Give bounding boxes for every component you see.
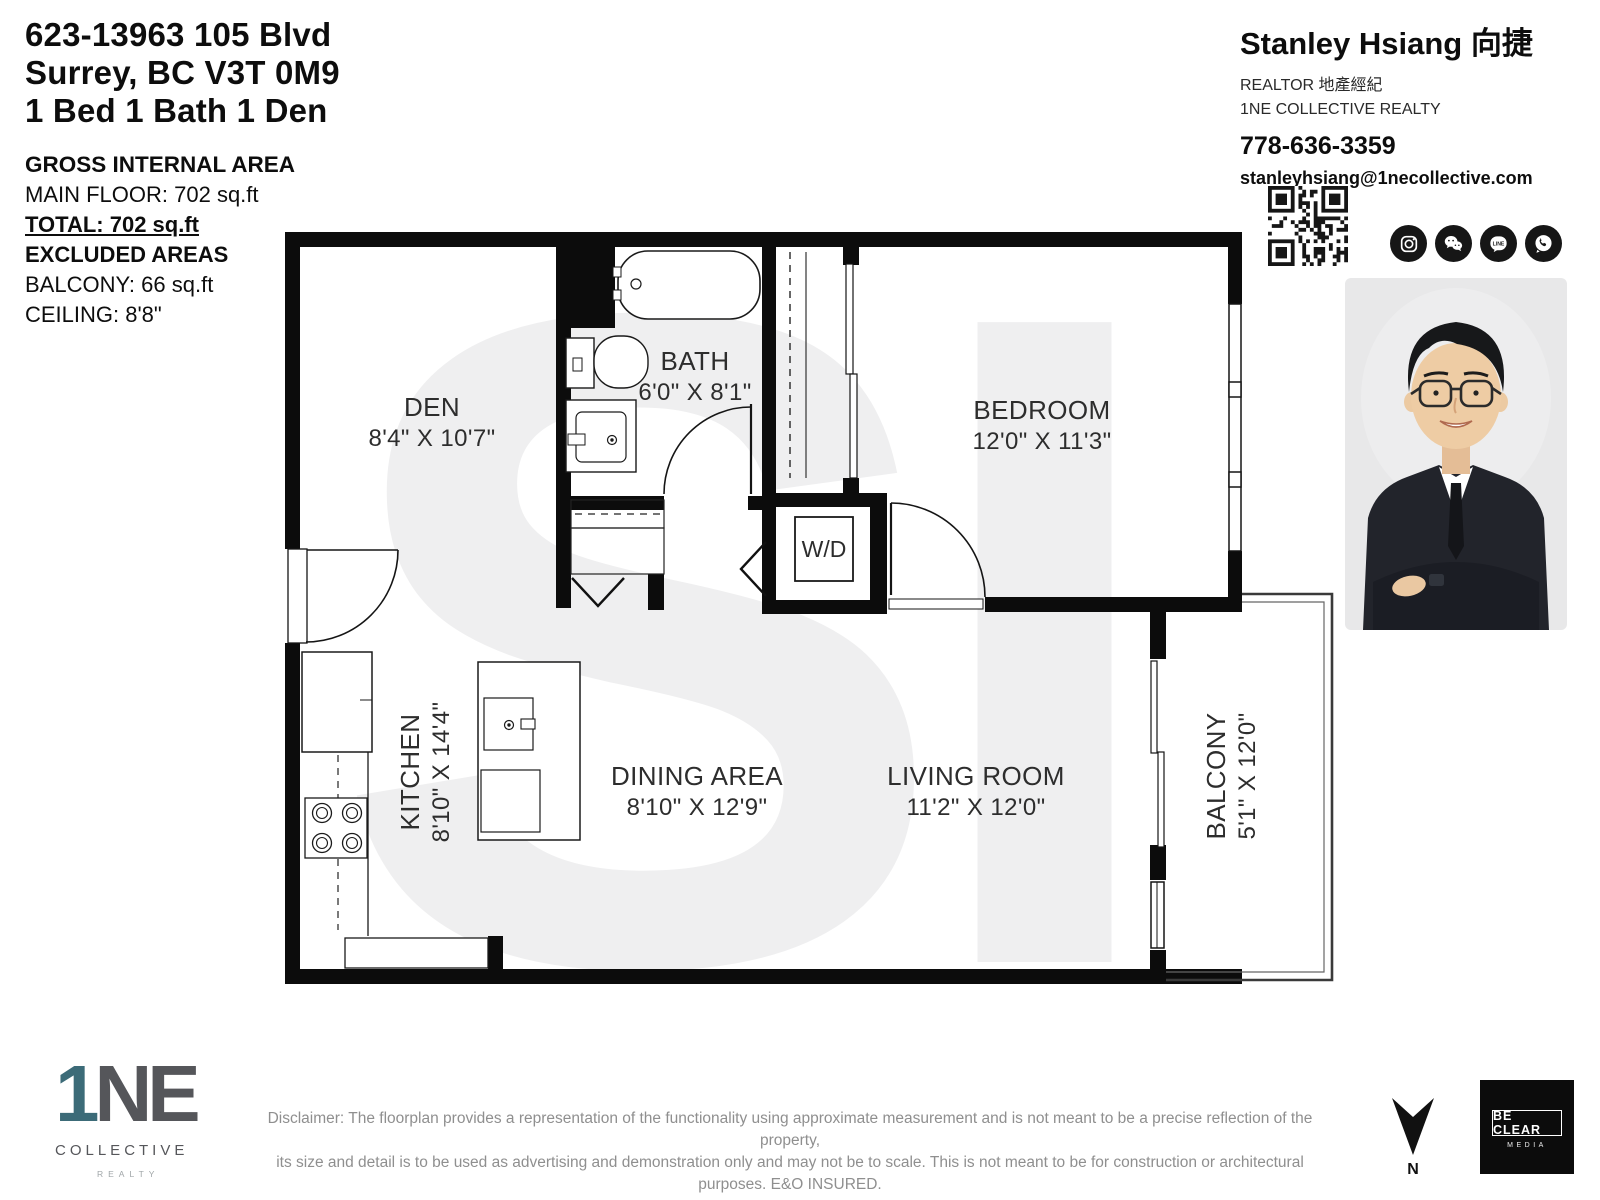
room-name: BATH: [595, 346, 795, 377]
total-area: TOTAL: 702 sq.ft: [25, 210, 295, 240]
media-badge: BE CLEAR MEDIA: [1480, 1080, 1574, 1174]
instagram-icon: [1390, 225, 1427, 262]
address-line2: Surrey, BC V3T 0M9: [25, 54, 340, 92]
agent-name: Stanley Hsiang 向捷: [1240, 18, 1580, 63]
room-name: LIVING ROOM: [856, 761, 1096, 792]
gross-internal-area-label: GROSS INTERNAL AREA: [25, 150, 295, 180]
bedroom-window: [1229, 304, 1241, 551]
wechat-icon: [1435, 225, 1472, 262]
room-name: DINING AREA: [577, 761, 817, 792]
room-name: KITCHEN: [395, 652, 426, 892]
balcony-area: BALCONY: 66 sq.ft: [25, 270, 295, 300]
agent-phone: 778-636-3359: [1240, 132, 1580, 161]
media-badge-title: BE CLEAR: [1492, 1110, 1562, 1136]
balcony-window: [1151, 882, 1164, 948]
room-name: BEDROOM: [922, 395, 1162, 426]
qr-code: [1268, 186, 1348, 266]
north-label: N: [1407, 1161, 1419, 1178]
logo-wordmark: 1NE: [55, 1054, 205, 1134]
kitchen-cabinet: [302, 652, 372, 752]
room-dims: 8'4" X 10'7": [332, 423, 532, 454]
agent-title: REALTOR 地產經紀: [1240, 71, 1580, 95]
agent-photo: [1345, 278, 1567, 630]
bathtub: [613, 251, 760, 319]
room-dims: 8'10" X 14'4": [426, 652, 457, 892]
room-dims: 5'1" X 12'0": [1232, 656, 1263, 896]
logo-collective: COLLECTIVE: [55, 1142, 205, 1159]
agent-info: Stanley Hsiang 向捷 REALTOR 地產經紀 1NE COLLE…: [1240, 18, 1580, 189]
area-summary: GROSS INTERNAL AREA MAIN FLOOR: 702 sq.f…: [25, 150, 295, 330]
room-name: DEN: [332, 392, 532, 423]
address-line3: 1 Bed 1 Bath 1 Den: [25, 92, 340, 130]
north-arrow: N: [1392, 1098, 1434, 1178]
logo-one: 1: [55, 1049, 95, 1138]
room-label-kitchen: KITCHEN 8'10" X 14'4": [395, 652, 459, 892]
room-dims: 12'0" X 11'3": [922, 426, 1162, 457]
room-dims: 11'2" X 12'0": [856, 792, 1096, 823]
agent-brokerage: 1NE COLLECTIVE REALTY: [1240, 101, 1580, 119]
room-dims: 6'0" X 8'1": [595, 377, 795, 408]
ceiling-height: CEILING: 8'8": [25, 300, 295, 330]
stove: [305, 798, 367, 858]
room-label-den: DEN 8'4" X 10'7": [332, 392, 532, 454]
address-line1: 623-13963 105 Blvd: [25, 16, 340, 54]
disclaimer-line2: its size and detail is to be used as adv…: [250, 1152, 1330, 1196]
excluded-areas-label: EXCLUDED AREAS: [25, 240, 295, 270]
line-icon: LINE: [1480, 225, 1517, 262]
line-icon-text: LINE: [1493, 241, 1505, 247]
kitchen-island: [478, 662, 580, 840]
room-label-balcony: BALCONY 5'1" X 12'0": [1201, 656, 1265, 896]
room-label-dining: DINING AREA 8'10" X 12'9": [577, 761, 817, 823]
disclaimer: Disclaimer: The floorplan provides a rep…: [250, 1108, 1330, 1196]
disclaimer-line1: Disclaimer: The floorplan provides a rep…: [250, 1108, 1330, 1152]
brokerage-logo: 1NE COLLECTIVE REALTY: [55, 1054, 205, 1179]
main-floor-area: MAIN FLOOR: 702 sq.ft: [25, 180, 295, 210]
logo-realty: REALTY: [97, 1169, 205, 1179]
room-label-bath: BATH 6'0" X 8'1": [595, 346, 795, 408]
room-dims: 8'10" X 12'9": [577, 792, 817, 823]
bathroom-sink: [566, 400, 636, 472]
whatsapp-icon: [1525, 225, 1562, 262]
room-label-bedroom: BEDROOM 12'0" X 11'3": [922, 395, 1162, 457]
balcony-sliding-door: [1151, 661, 1164, 847]
washer-dryer-label: W/D: [789, 536, 859, 563]
logo-ne: NE: [95, 1049, 196, 1138]
room-name: BALCONY: [1201, 656, 1232, 896]
room-label-living: LIVING ROOM 11'2" X 12'0": [856, 761, 1096, 823]
address-block: 623-13963 105 Blvd Surrey, BC V3T 0M9 1 …: [25, 16, 340, 130]
media-badge-subtitle: MEDIA: [1507, 1142, 1547, 1149]
social-icons: LINE: [1390, 225, 1562, 262]
